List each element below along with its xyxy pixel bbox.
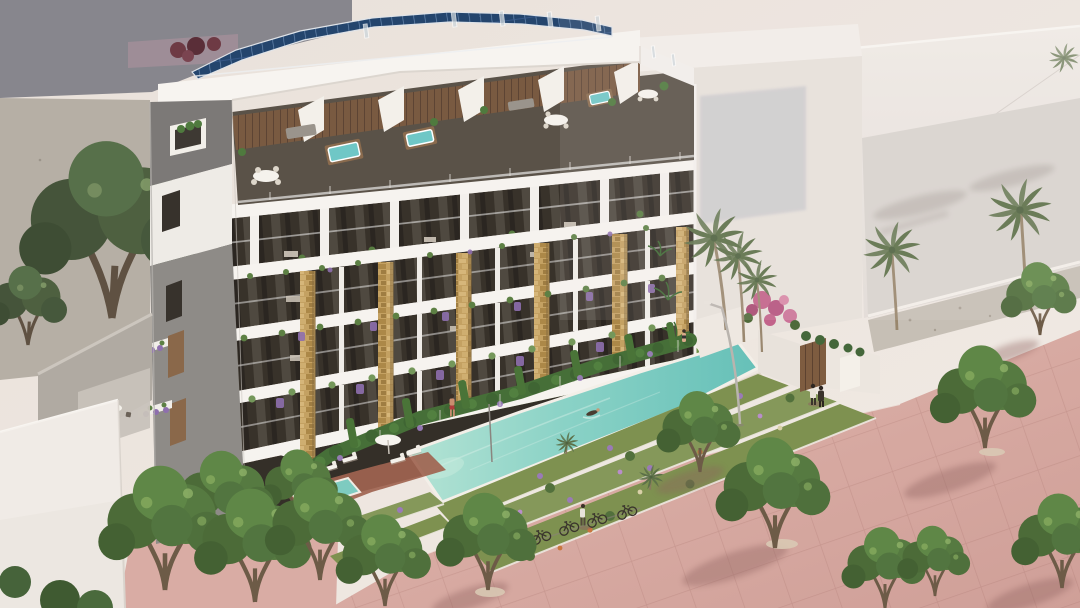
haze-overlay	[560, 0, 1080, 320]
architectural-rendering: New-build apartment complex — aerial art…	[0, 0, 1080, 608]
person-by-pool	[682, 329, 686, 342]
